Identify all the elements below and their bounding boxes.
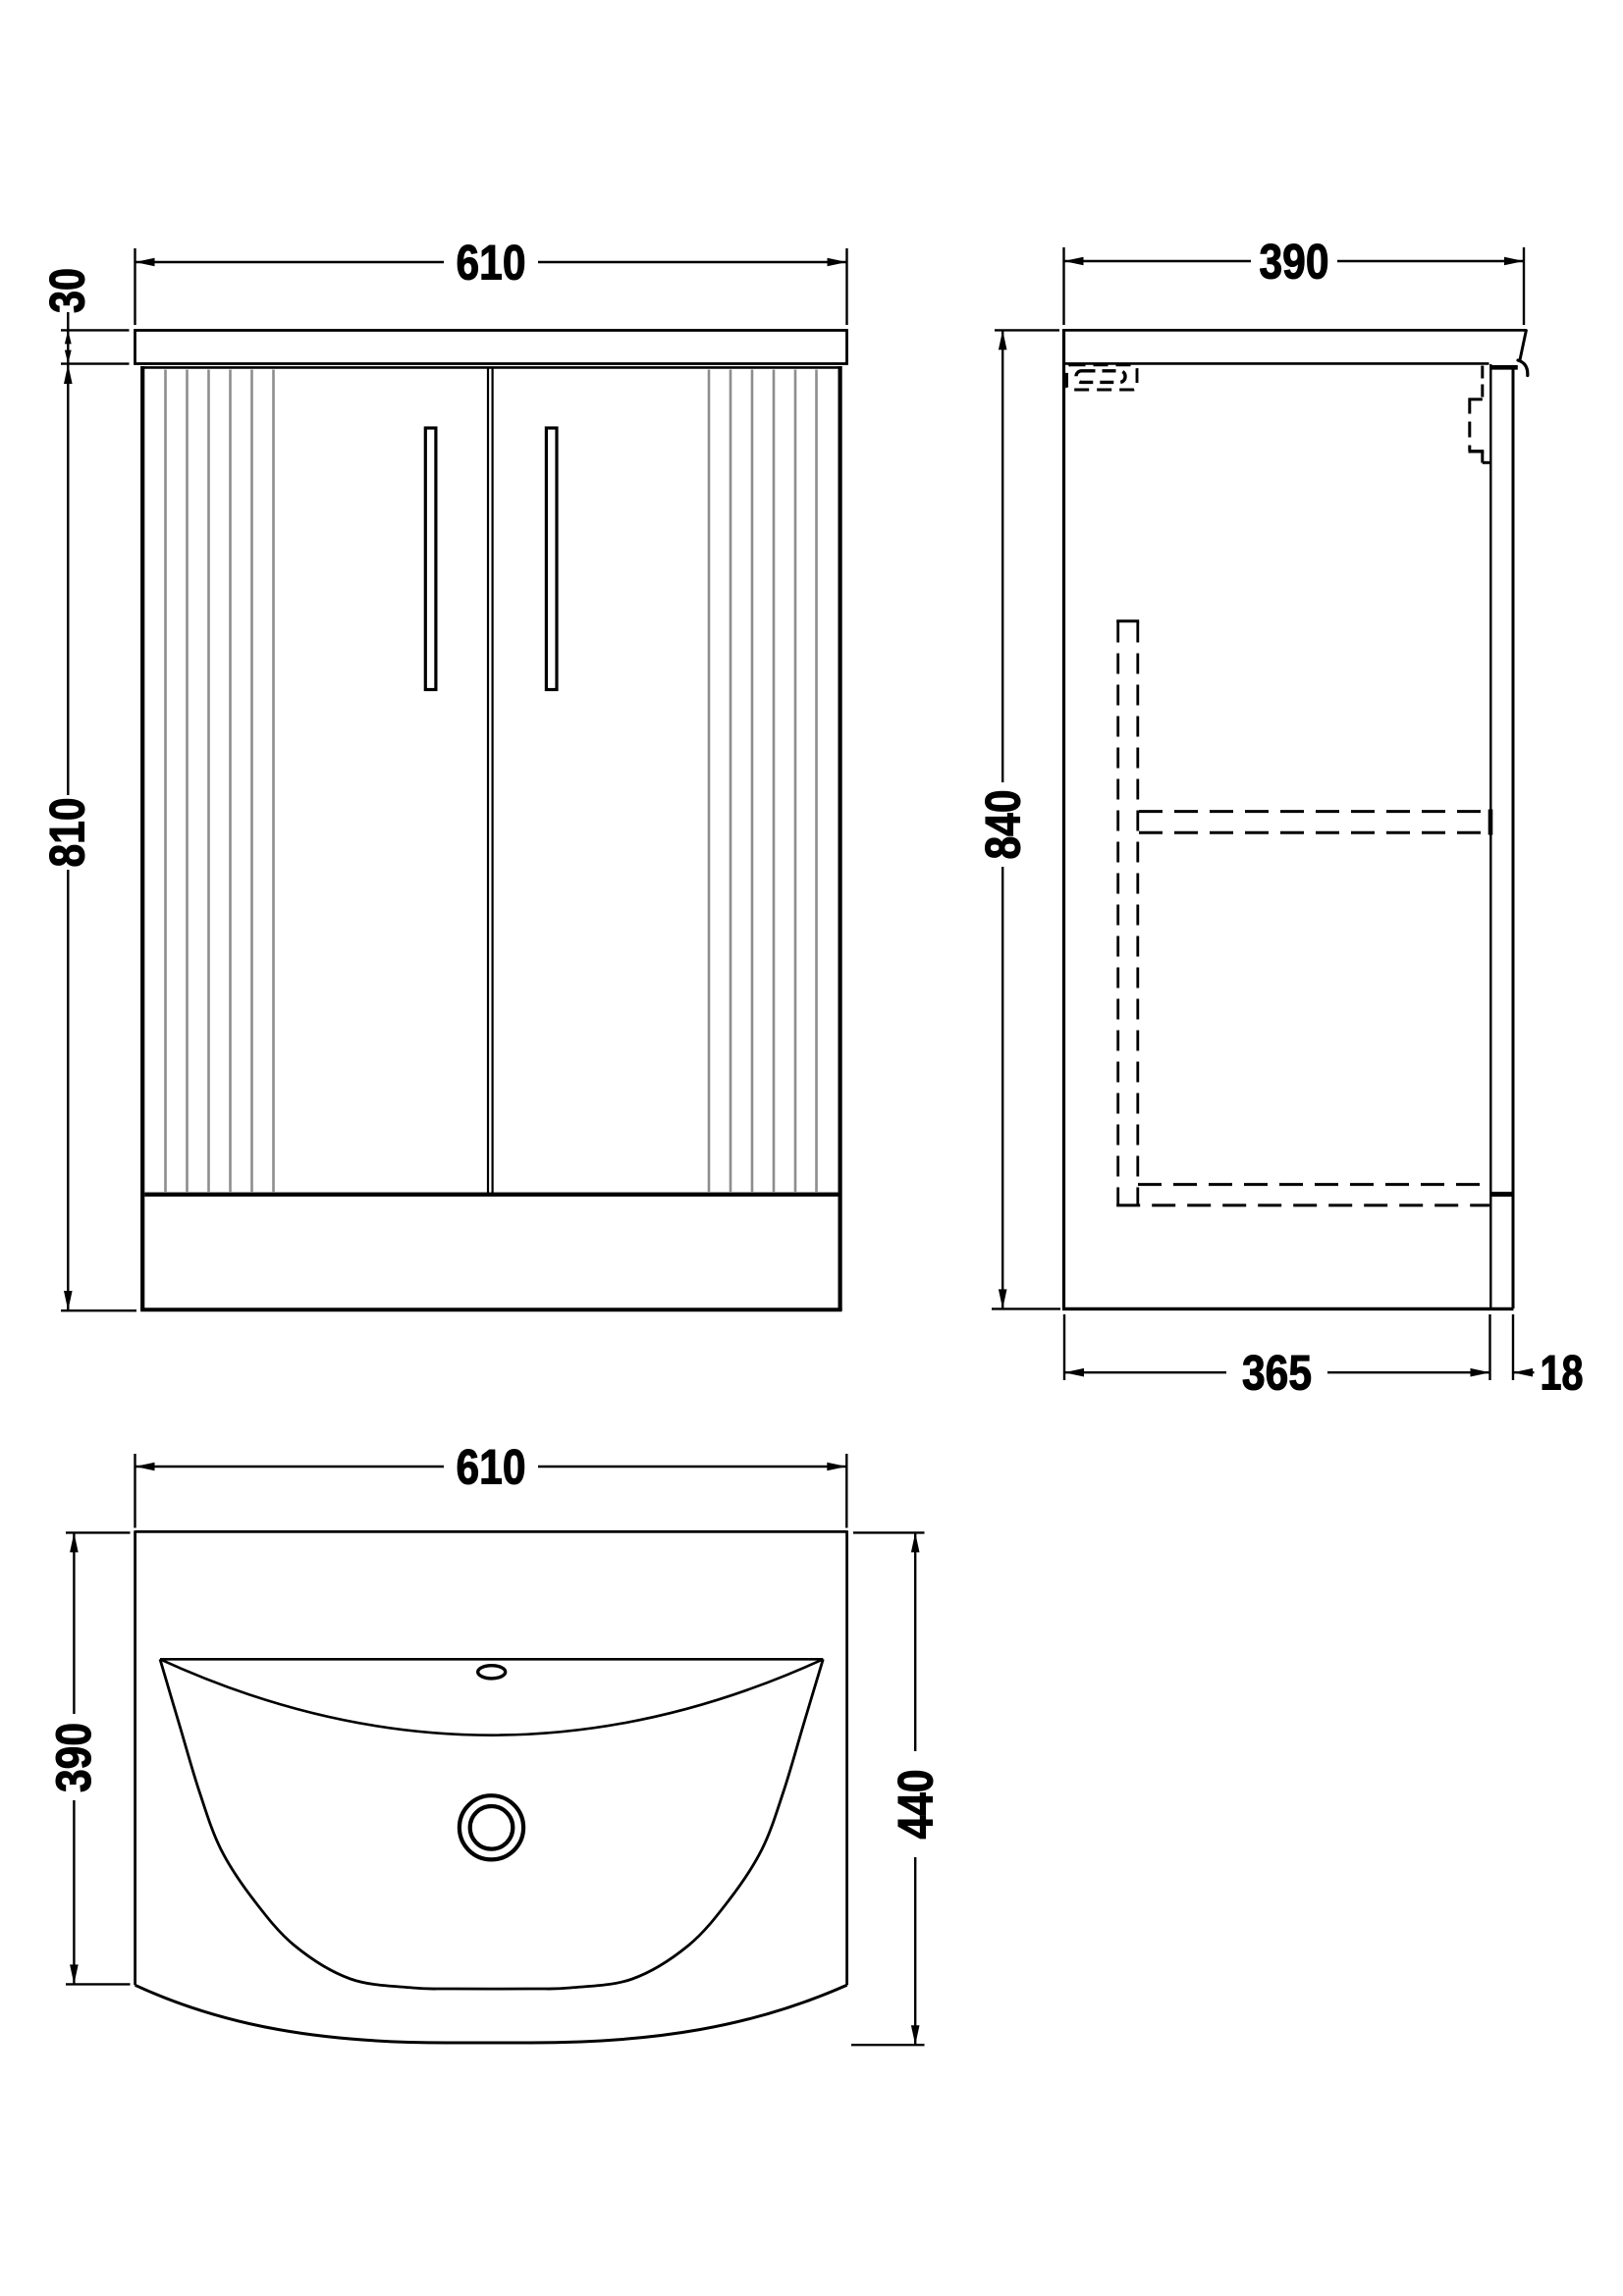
svg-text:810: 810: [40, 798, 95, 868]
svg-text:390: 390: [46, 1723, 101, 1792]
svg-text:365: 365: [1242, 1346, 1312, 1401]
svg-text:840: 840: [976, 790, 1031, 860]
svg-text:610: 610: [457, 1440, 526, 1495]
svg-text:18: 18: [1541, 1346, 1584, 1401]
svg-text:30: 30: [40, 268, 95, 313]
svg-text:610: 610: [457, 236, 526, 291]
svg-text:440: 440: [889, 1770, 944, 1840]
svg-text:390: 390: [1260, 235, 1329, 290]
